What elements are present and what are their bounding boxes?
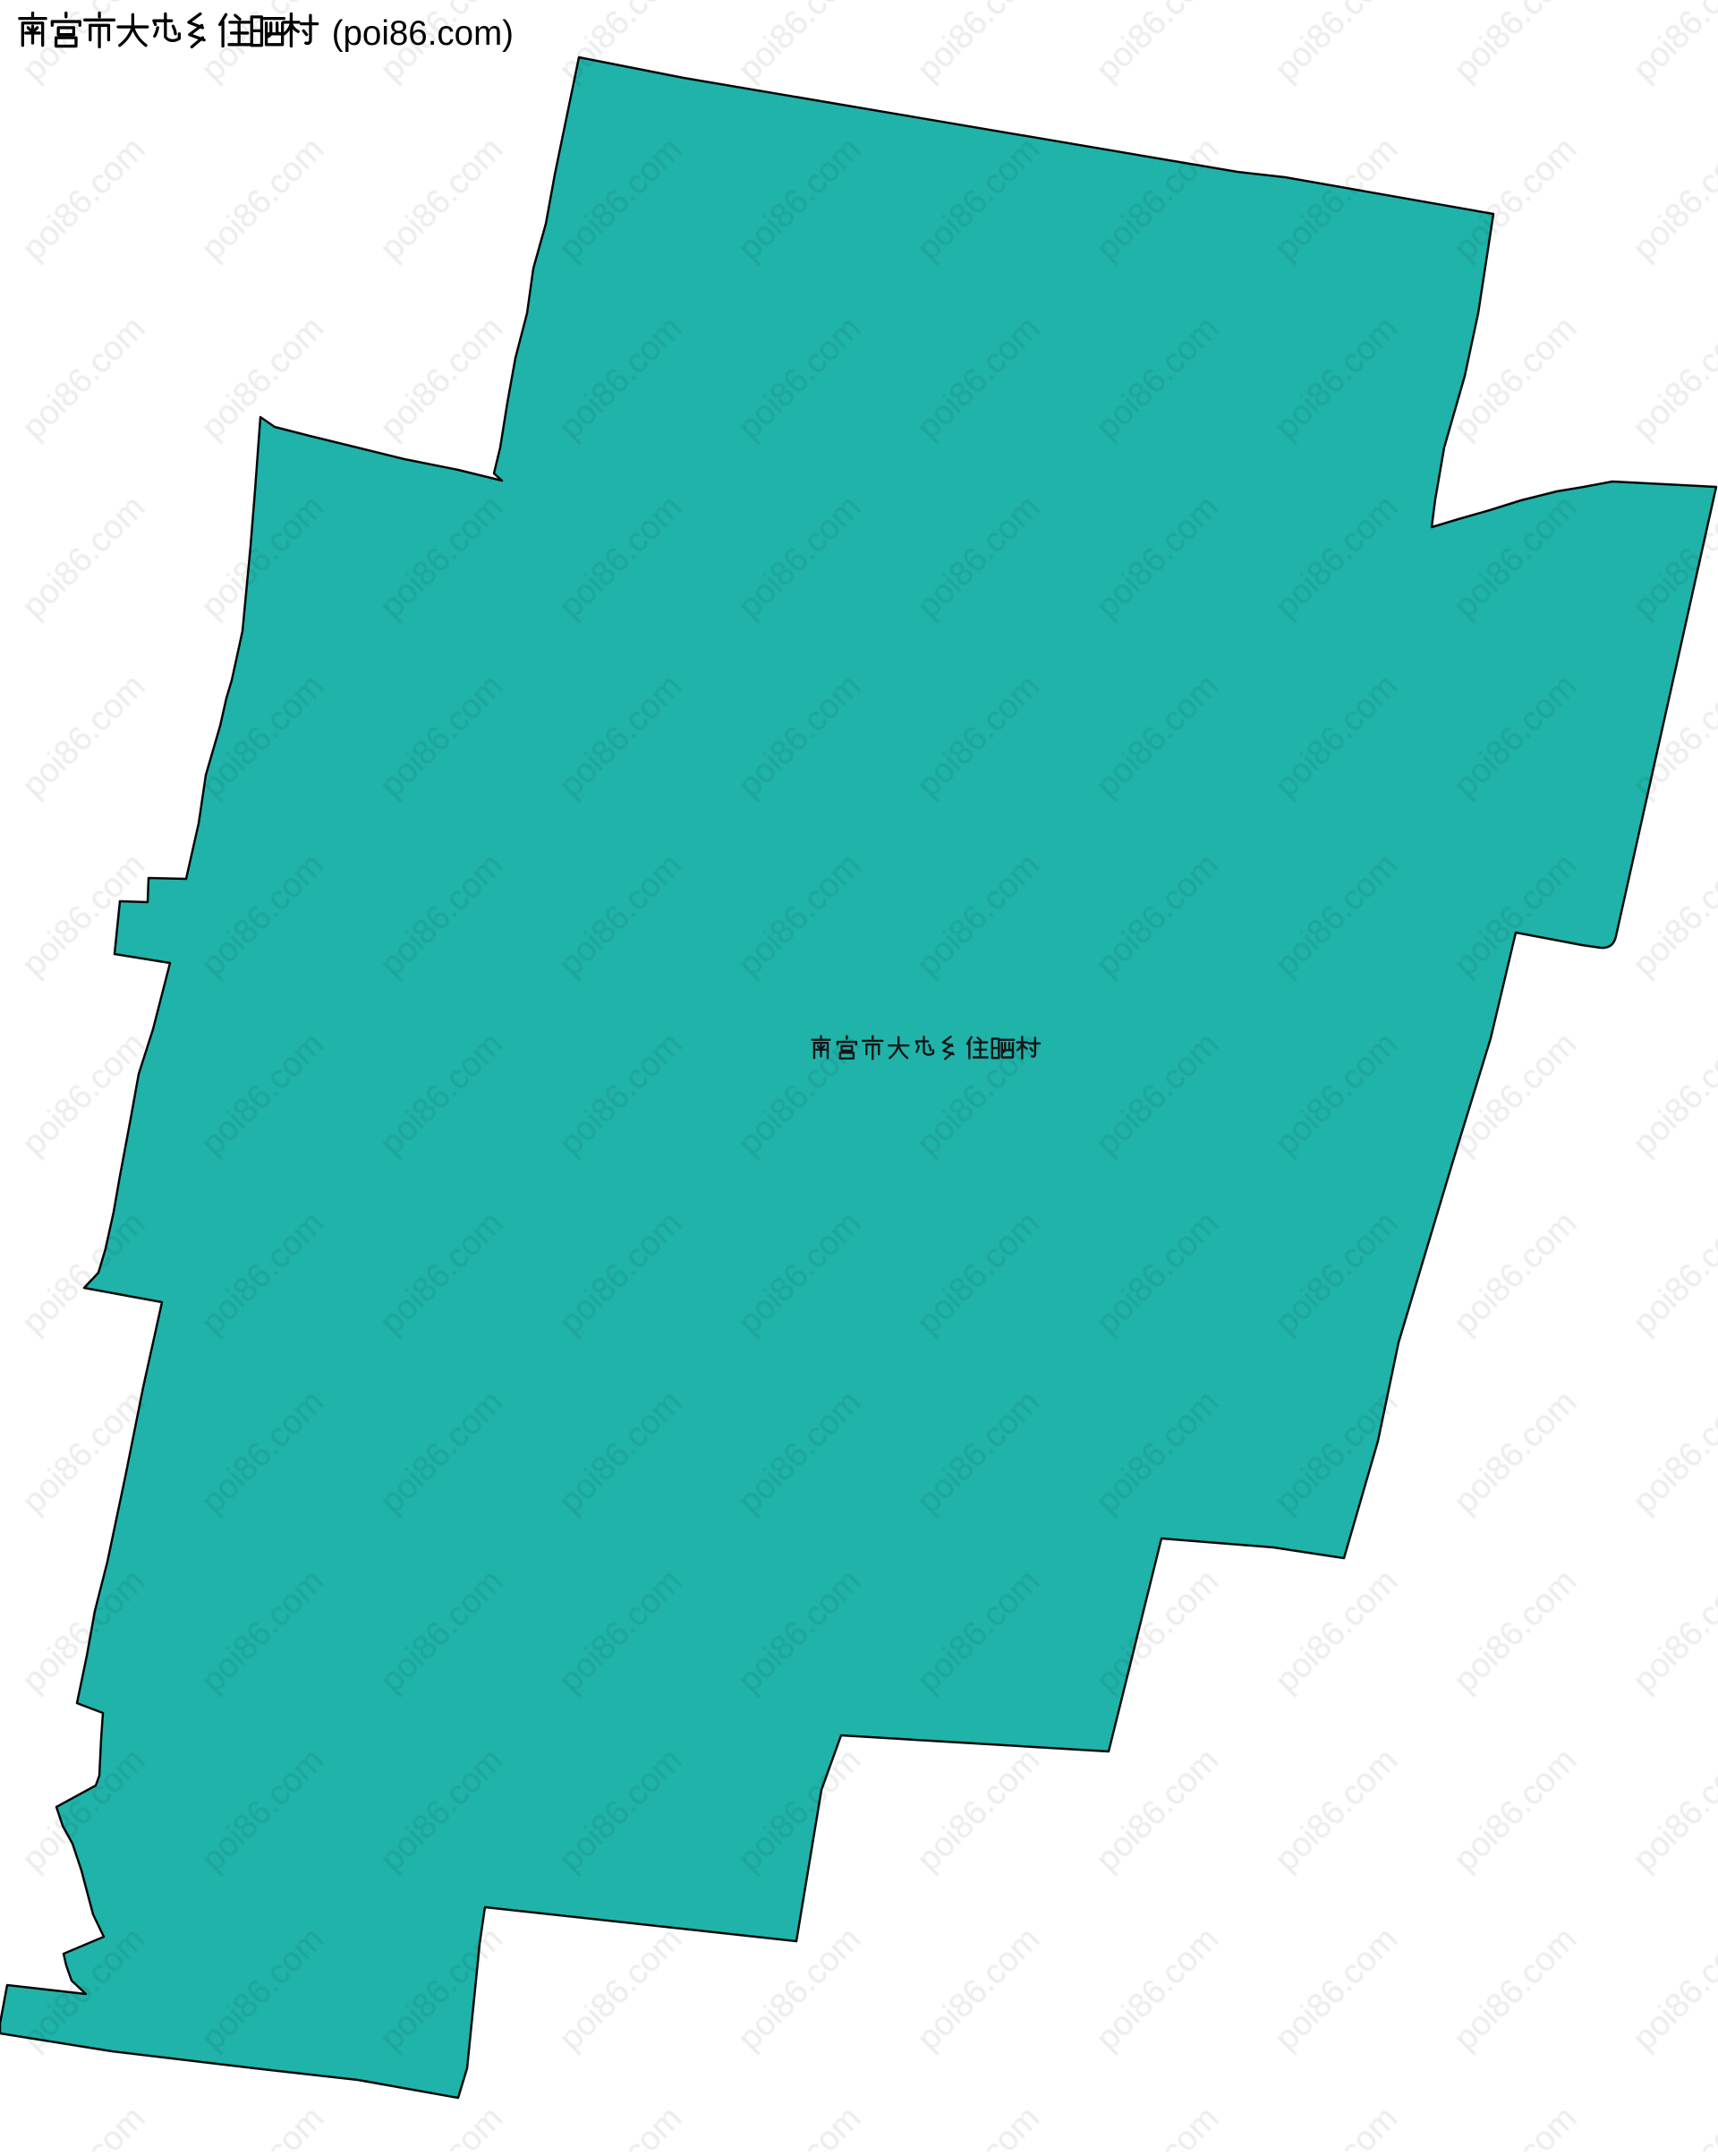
svg-text:(poi86.com): (poi86.com)	[322, 14, 514, 53]
